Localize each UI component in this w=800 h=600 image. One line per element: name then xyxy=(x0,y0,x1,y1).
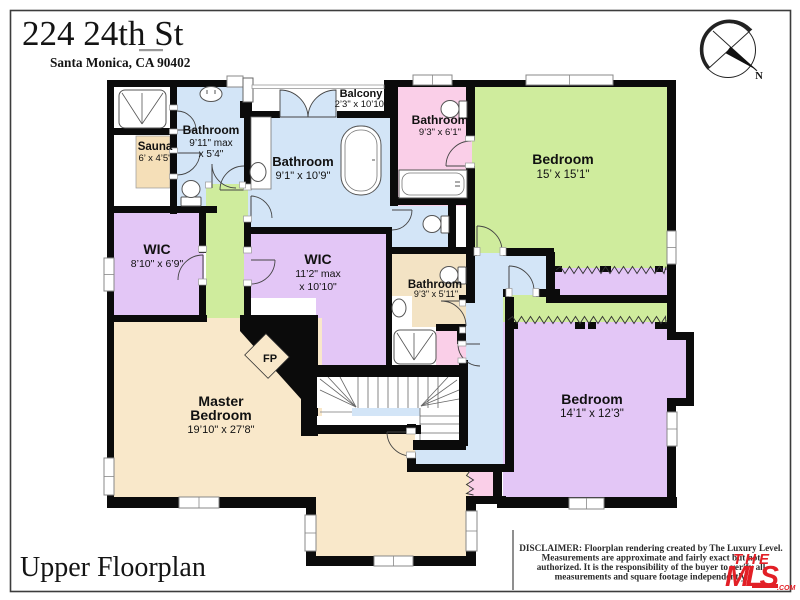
svg-text:x 10’10": x 10’10" xyxy=(299,281,337,293)
svg-text:x 5’4": x 5’4" xyxy=(199,149,224,160)
svg-text:FP: FP xyxy=(263,353,277,365)
svg-text:14’1" x 12’3": 14’1" x 12’3" xyxy=(560,408,624,420)
svg-text:9’11" max: 9’11" max xyxy=(189,138,232,149)
svg-text:6’ x 4’5": 6’ x 4’5" xyxy=(138,153,171,164)
svg-text:.COM: .COM xyxy=(777,585,795,592)
svg-text:Bedroom: Bedroom xyxy=(532,151,593,167)
svg-text:WIC: WIC xyxy=(143,241,170,257)
svg-text:Bathroom: Bathroom xyxy=(272,154,333,169)
svg-text:8’10" x 6’9": 8’10" x 6’9" xyxy=(131,258,184,270)
svg-text:N: N xyxy=(755,71,763,82)
svg-text:Bathroom: Bathroom xyxy=(183,123,240,137)
svg-text:19’10" x 27’8": 19’10" x 27’8" xyxy=(187,424,254,436)
svg-text:9’3" x 5’11": 9’3" x 5’11" xyxy=(414,289,458,299)
svg-text:2’3" x 10’10": 2’3" x 10’10" xyxy=(335,99,388,110)
svg-text:Bedroom: Bedroom xyxy=(561,391,622,407)
svg-text:224 24th St: 224 24th St xyxy=(22,14,184,53)
svg-text:Bathroom: Bathroom xyxy=(412,113,469,127)
svg-text:Bedroom: Bedroom xyxy=(190,407,251,423)
svg-text:Sauna: Sauna xyxy=(138,141,173,153)
svg-text:WIC: WIC xyxy=(304,251,331,267)
svg-text:9’3" x 6’1": 9’3" x 6’1" xyxy=(419,127,461,138)
svg-text:9’1" x 10’9": 9’1" x 10’9" xyxy=(276,170,331,182)
svg-text:Santa Monica, CA 90402: Santa Monica, CA 90402 xyxy=(50,55,191,70)
svg-text:15’ x 15’1": 15’ x 15’1" xyxy=(537,169,590,181)
svg-text:11’2" max: 11’2" max xyxy=(295,268,341,280)
svg-text:Upper Floorplan: Upper Floorplan xyxy=(20,552,206,583)
svg-text:DISCLAIMER: Floorplan renderin: DISCLAIMER: Floorplan rendering created … xyxy=(519,543,782,553)
svg-text:measurements and square footag: measurements and square footage independ… xyxy=(555,572,748,582)
svg-text:MLS: MLS xyxy=(725,561,780,593)
